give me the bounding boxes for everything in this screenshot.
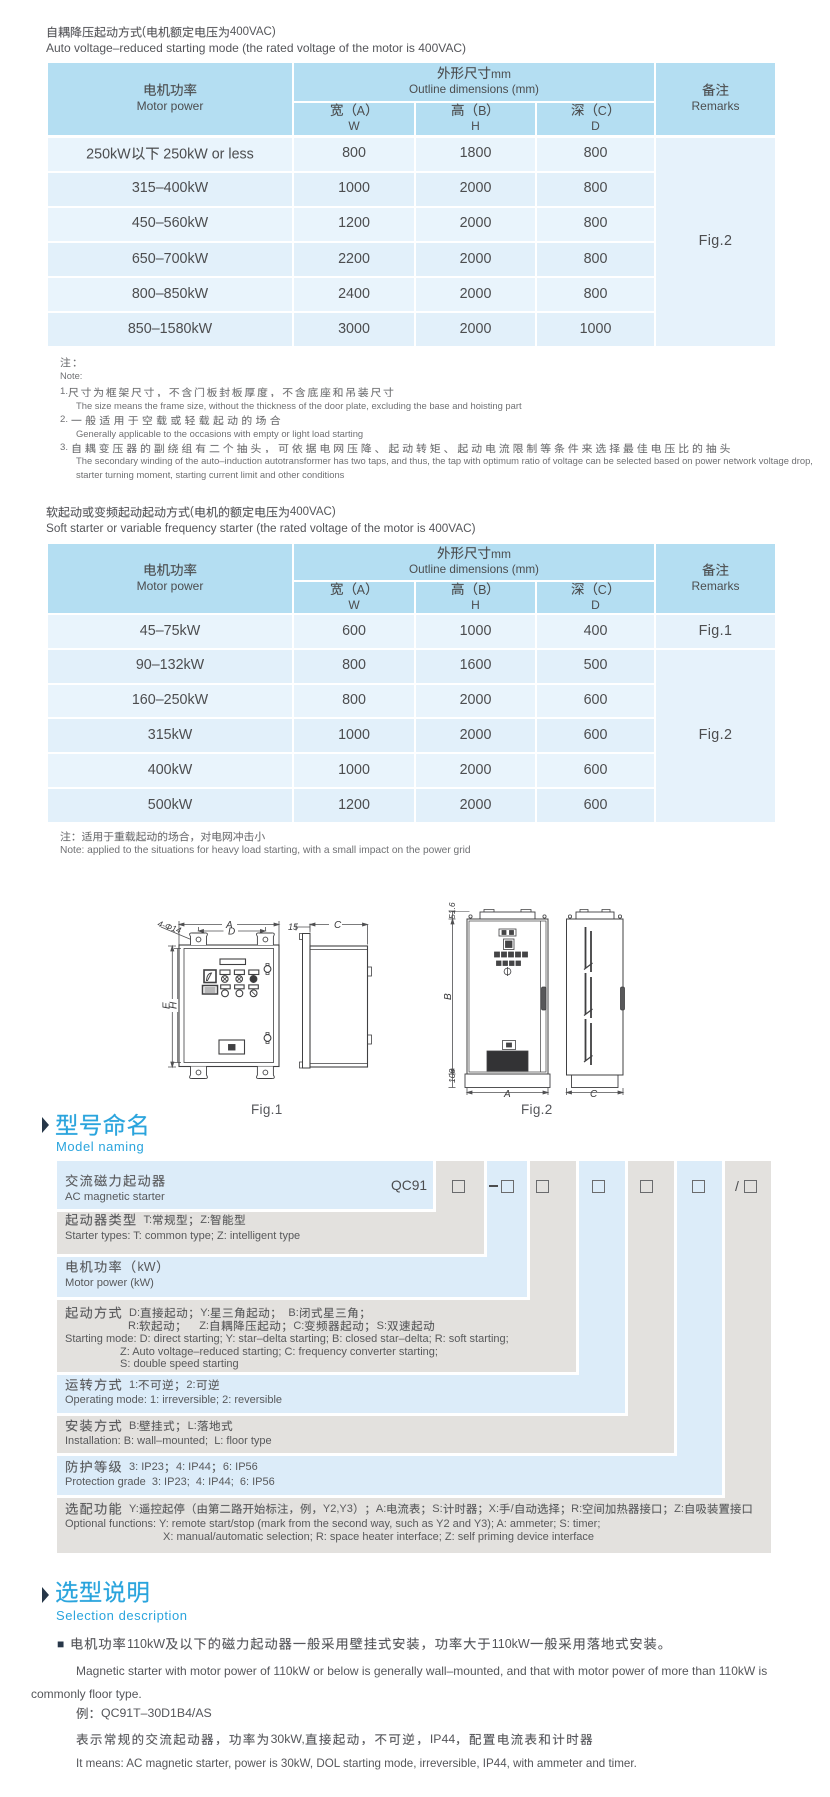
svg-text:C: C xyxy=(590,1089,598,1100)
svg-text:D: D xyxy=(228,927,235,938)
svg-text:A: A xyxy=(503,1089,511,1100)
svg-text:C: C xyxy=(334,920,342,931)
svg-text:51.6: 51.6 xyxy=(447,902,457,919)
svg-text:H: H xyxy=(169,1001,180,1009)
